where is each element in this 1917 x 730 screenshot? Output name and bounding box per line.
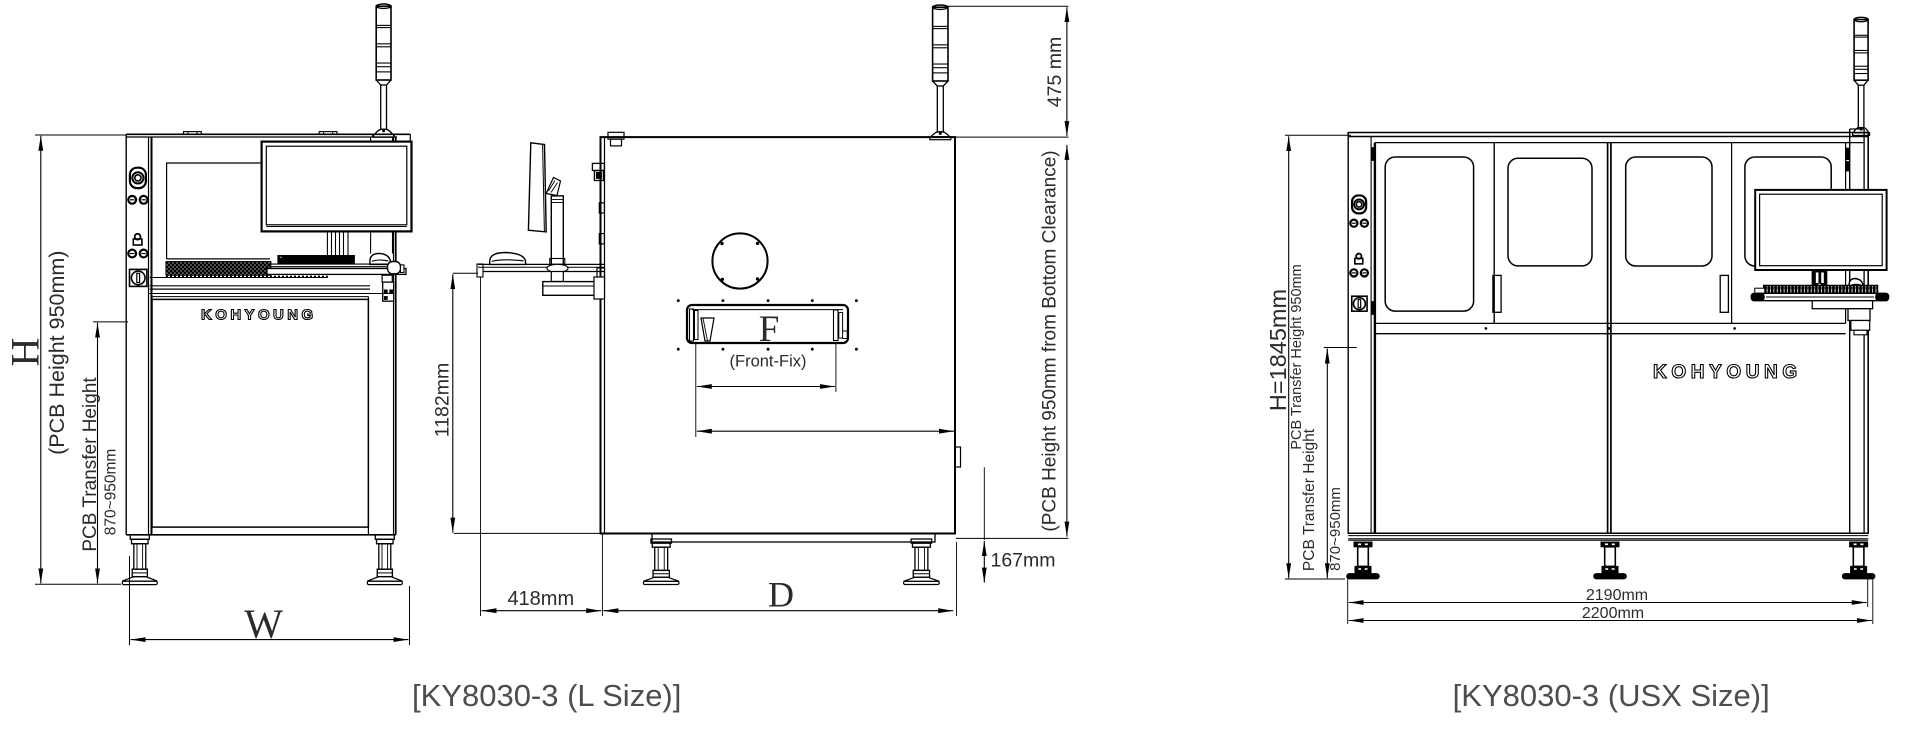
svg-text:[KY8030-3 (L Size)]: [KY8030-3 (L Size)] [412,678,681,713]
svg-text:(PCB Height 950mm from Bottom: (PCB Height 950mm from Bottom Clearance) [1040,150,1061,531]
svg-text:418mm: 418mm [507,588,574,610]
svg-text:2190mm: 2190mm [1586,587,1648,604]
svg-text:PCB Transfer Height: PCB Transfer Height [1301,428,1318,571]
svg-text:H: H [2,338,47,367]
svg-text:475 mm: 475 mm [1044,37,1066,107]
svg-text:(PCB Height 950mm): (PCB Height 950mm) [45,251,69,455]
svg-text:F: F [759,309,780,350]
svg-text:H=1845mm: H=1845mm [1265,289,1291,411]
svg-text:KOHYOUNG: KOHYOUNG [1653,362,1802,383]
svg-text:D: D [768,574,794,614]
svg-text:2200mm: 2200mm [1582,605,1644,622]
svg-text:(Front-Fix): (Front-Fix) [730,352,807,370]
svg-text:KOHYOUNG: KOHYOUNG [201,307,317,324]
svg-text:1182mm: 1182mm [432,363,454,437]
svg-text:[KY8030-3 (USX Size)]: [KY8030-3 (USX Size)] [1453,678,1770,713]
svg-text:870~950mm: 870~950mm [103,449,120,536]
svg-text:167mm: 167mm [990,550,1055,572]
svg-text:PCB Transfer Height: PCB Transfer Height [80,377,101,552]
svg-text:PCB Transfer Height 950mm: PCB Transfer Height 950mm [1289,264,1305,449]
svg-text:W: W [244,601,283,647]
svg-text:870~950mm: 870~950mm [1327,487,1344,571]
